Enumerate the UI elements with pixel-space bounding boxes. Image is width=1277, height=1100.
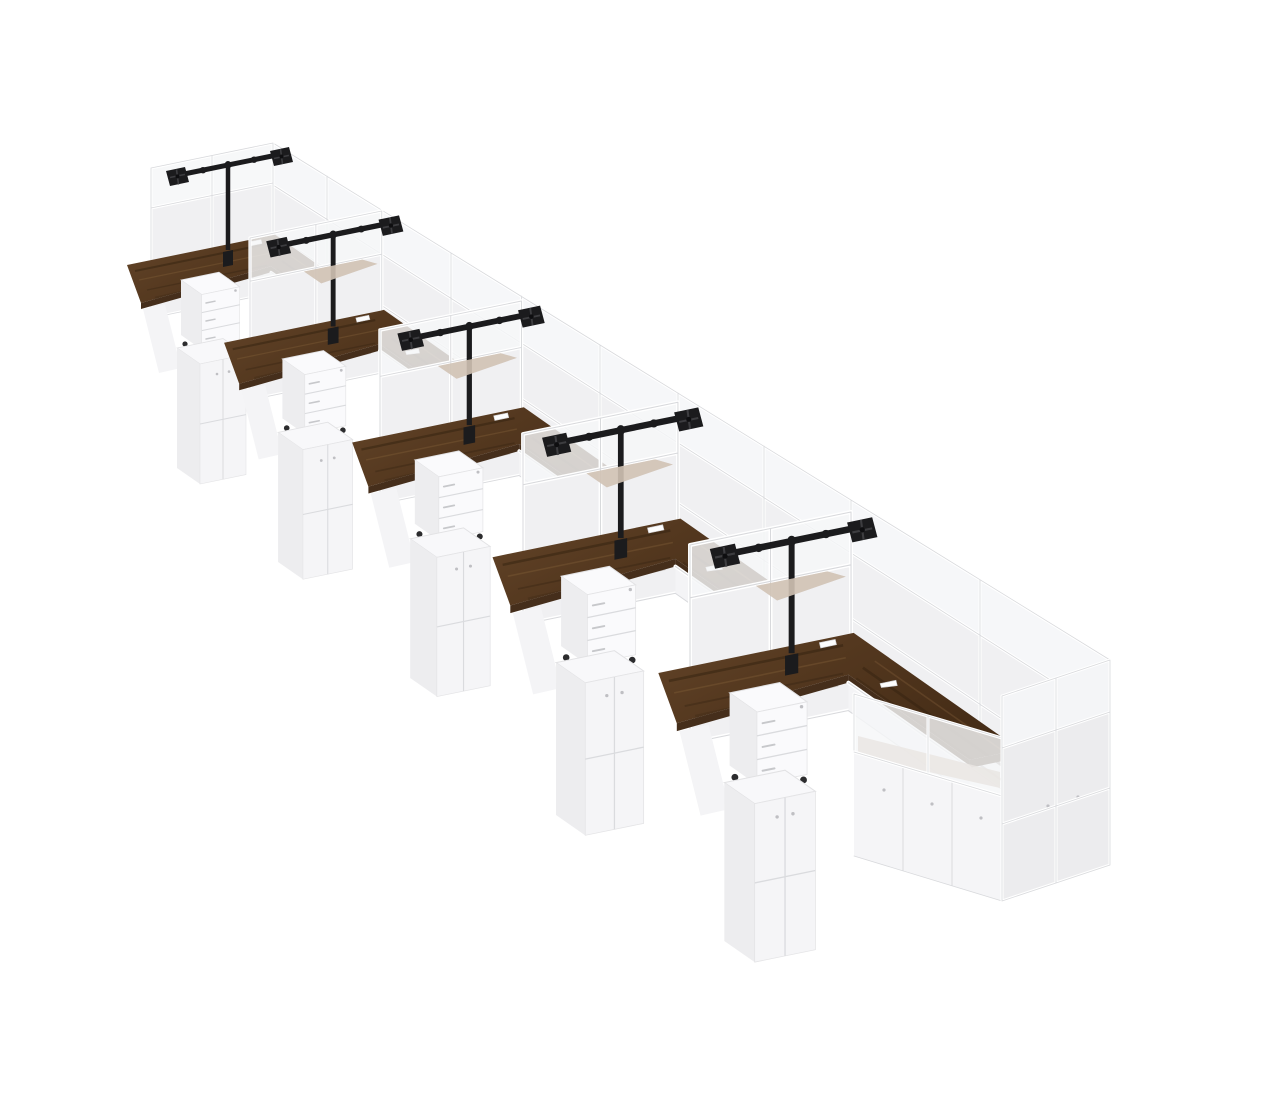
right-end-wall xyxy=(1002,660,1110,901)
cabinet-lock xyxy=(979,816,982,819)
cubicle-3d-render xyxy=(0,0,1277,1100)
cubicle-render-stage xyxy=(0,0,1277,1100)
cabinet-lock xyxy=(882,788,885,791)
cabinet-lock xyxy=(930,802,933,805)
